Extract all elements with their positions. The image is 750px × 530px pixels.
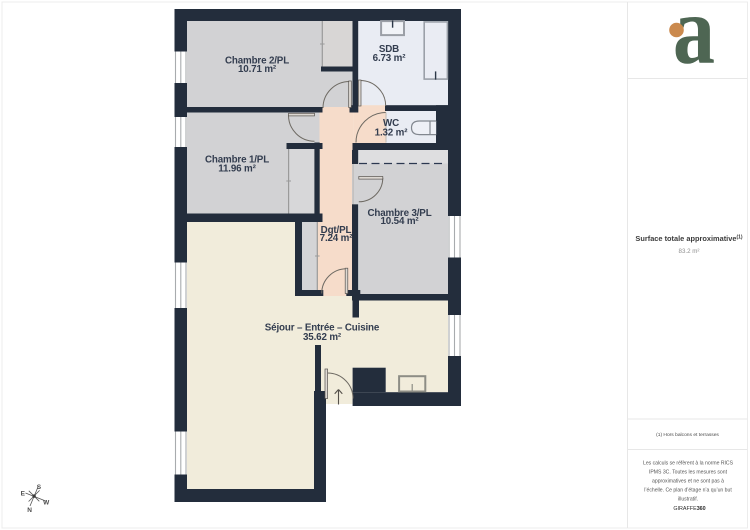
svg-text:6.73 m²: 6.73 m² [373,53,407,64]
svg-text:S: S [37,484,42,491]
svg-text:7.24 m²: 7.24 m² [320,233,354,244]
svg-text:35.62 m²: 35.62 m² [303,332,342,343]
svg-text:Surface totale approximative(1: Surface totale approximative(1) [635,234,742,243]
svg-text:83.2 m²: 83.2 m² [679,248,700,255]
svg-text:10.71 m²: 10.71 m² [238,64,277,75]
svg-text:GIRAFFE360: GIRAFFE360 [673,506,705,512]
svg-text:E: E [21,490,26,497]
svg-text:illustratif.: illustratif. [678,497,698,503]
svg-text:10.54 m²: 10.54 m² [380,216,419,227]
svg-text:approximatives et ne sont pas: approximatives et ne sont pas à [652,479,724,485]
svg-text:IPMS 3C. Toutes les mesures so: IPMS 3C. Toutes les mesures sont [649,470,728,476]
svg-text:l’échelle. Ce plan d’étage n’a: l’échelle. Ce plan d’étage n’a qu’un but [644,488,732,494]
svg-text:Les calculs se réfèrent à la n: Les calculs se réfèrent à la norme RICS [643,461,734,467]
svg-text:W: W [43,499,50,506]
svg-text:(1) Hors balcons et terrasses: (1) Hors balcons et terrasses [656,432,719,438]
svg-text:1.32 m²: 1.32 m² [375,128,409,139]
svg-text:11.96 m²: 11.96 m² [218,163,256,174]
svg-text:a: a [673,0,715,84]
svg-text:N: N [27,507,32,514]
